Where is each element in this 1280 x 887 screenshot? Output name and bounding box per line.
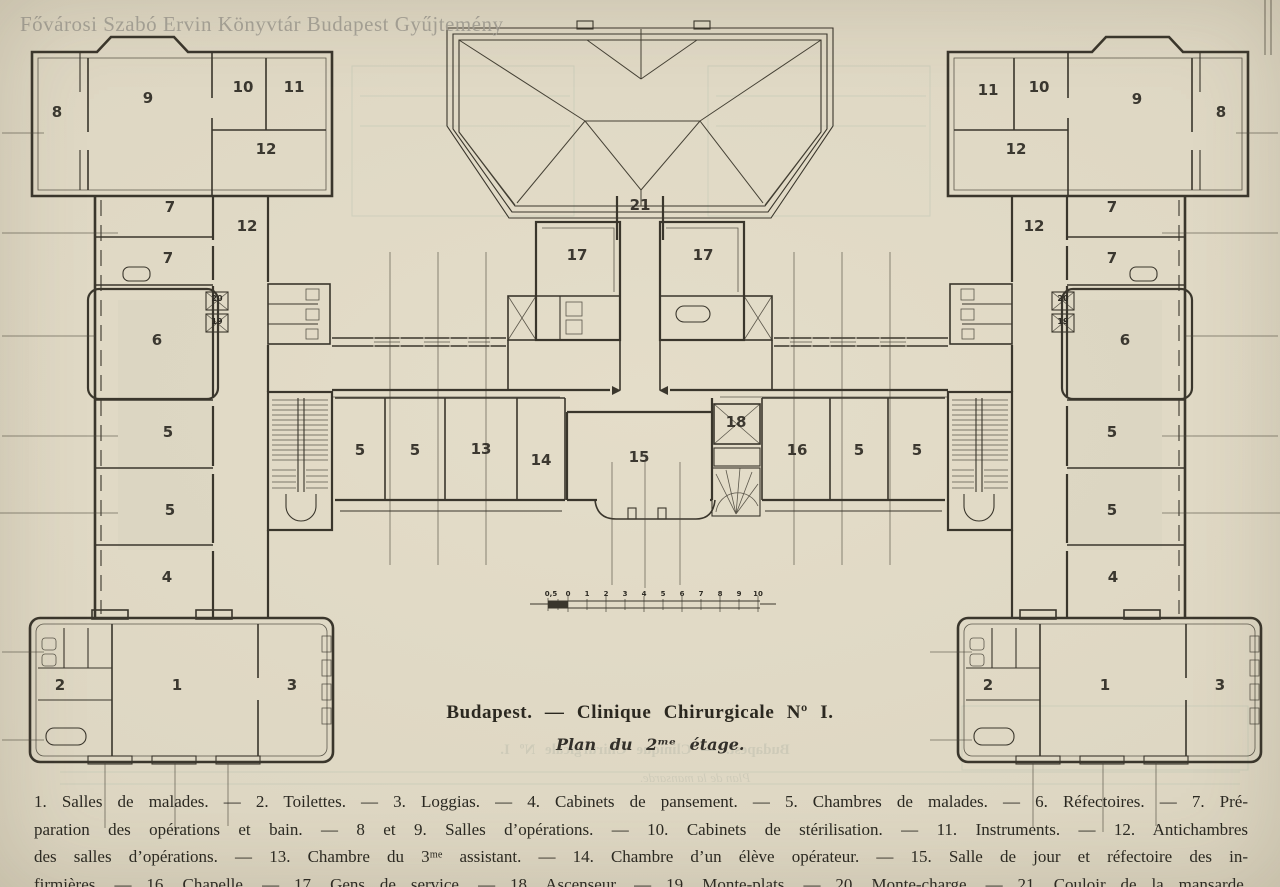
scale-tick-label: 4 [642, 590, 647, 598]
scale-tick-label: 3 [623, 590, 628, 598]
room-number-label: 18 [726, 413, 747, 431]
room-number-label: 2 [55, 676, 65, 694]
plan-subtitle: Plan du 2ᵐᵉ étage. [556, 735, 744, 754]
legend-line-3: des salles d’opérations. — 13. Chambre d… [34, 843, 1248, 871]
scale-tick-label: 0,5 [545, 590, 558, 598]
room-number-label: 13 [471, 440, 492, 458]
room-number-label: 12 [1024, 217, 1045, 235]
scale-tick-label: 9 [737, 590, 742, 598]
room-number-label: 10 [233, 78, 254, 96]
room-number-label: 15 [629, 448, 650, 466]
room-number-label: 6 [152, 331, 162, 349]
room-number-label: 10 [1029, 78, 1050, 96]
room-number-label: 12 [1006, 140, 1027, 158]
room-number-label: 5 [1107, 423, 1117, 441]
room-legend: 1. Salles de malades. — 2. Toilettes. — … [34, 788, 1248, 887]
room-number-label: 1 [172, 676, 182, 694]
bleed-through-layer [60, 66, 1248, 784]
scale-tick-label: 1 [585, 590, 590, 598]
scale-tick-label: 10 [753, 590, 763, 598]
scale-tick-label: 8 [718, 590, 723, 598]
legend-line-2: paration des opérations et bain. — 8 et … [34, 816, 1248, 844]
scale-tick-label: 5 [661, 590, 666, 598]
shaft-number-label: 19 [211, 317, 223, 326]
scale-tick-label: 0 [566, 590, 571, 598]
room-number-label: 11 [978, 81, 999, 99]
room-number-label: 17 [567, 246, 588, 264]
room-number-label: 1 [1100, 676, 1110, 694]
room-number-label: 8 [1216, 103, 1226, 121]
room-number-label: 12 [256, 140, 277, 158]
room-number-label: 5 [854, 441, 864, 459]
shaft-number-label: 20 [1057, 294, 1069, 303]
shaft-number-label: 19 [1057, 317, 1069, 326]
scanned-floor-plan-page: 0,5012345678910 891011127127655421321171… [0, 0, 1280, 887]
plan-title: Budapest. — Clinique Chirurgicale Nº I. [446, 702, 833, 724]
room-number-labels: 8910111271276554213211717551314151816551… [52, 78, 1226, 694]
scale-tick-label: 6 [680, 590, 685, 598]
room-number-label: 5 [912, 441, 922, 459]
shaft-number-label: 20 [211, 294, 223, 303]
hospital-wing-right [774, 37, 1280, 618]
library-watermark: Fővárosi Szabó Ervin Könyvtár Budapest G… [20, 12, 504, 37]
hospital-wing-left [0, 37, 506, 618]
room-number-label: 5 [163, 423, 173, 441]
room-number-label: 21 [630, 196, 651, 214]
legend-line-1: 1. Salles de malades. — 2. Toilettes. — … [34, 788, 1248, 816]
room-number-label: 7 [1107, 198, 1117, 216]
scale-bar: 0,5012345678910 [530, 590, 776, 612]
room-number-label: 3 [1215, 676, 1225, 694]
room-number-label: 4 [162, 568, 172, 586]
room-number-label: 3 [287, 676, 297, 694]
room-number-label: 5 [410, 441, 420, 459]
room-number-label: 8 [52, 103, 62, 121]
room-number-label: 9 [143, 89, 153, 107]
room-number-label: 4 [1108, 568, 1118, 586]
legend-line-4: firmières. — 16. Chapelle. — 17. Gens de… [34, 871, 1248, 887]
room-number-label: 9 [1132, 90, 1142, 108]
room-number-label: 5 [165, 501, 175, 519]
room-number-label: 7 [1107, 249, 1117, 267]
room-number-label: 6 [1120, 331, 1130, 349]
shaft-number-labels: 20192019 [211, 294, 1069, 326]
room-number-label: 17 [693, 246, 714, 264]
central-band-rooms [332, 386, 948, 588]
room-number-label: 16 [787, 441, 808, 459]
room-number-label: 7 [165, 198, 175, 216]
service-rooms-17 [508, 222, 772, 390]
room-number-label: 12 [237, 217, 258, 235]
room-number-label: 7 [163, 249, 173, 267]
room-number-label: 2 [983, 676, 993, 694]
room-number-label: 5 [355, 441, 365, 459]
scale-tick-label: 2 [604, 590, 609, 598]
room-number-label: 11 [284, 78, 305, 96]
room-number-label: 14 [531, 451, 552, 469]
page-edge-line [1265, 0, 1271, 55]
room-number-label: 5 [1107, 501, 1117, 519]
scale-tick-label: 7 [699, 590, 704, 598]
